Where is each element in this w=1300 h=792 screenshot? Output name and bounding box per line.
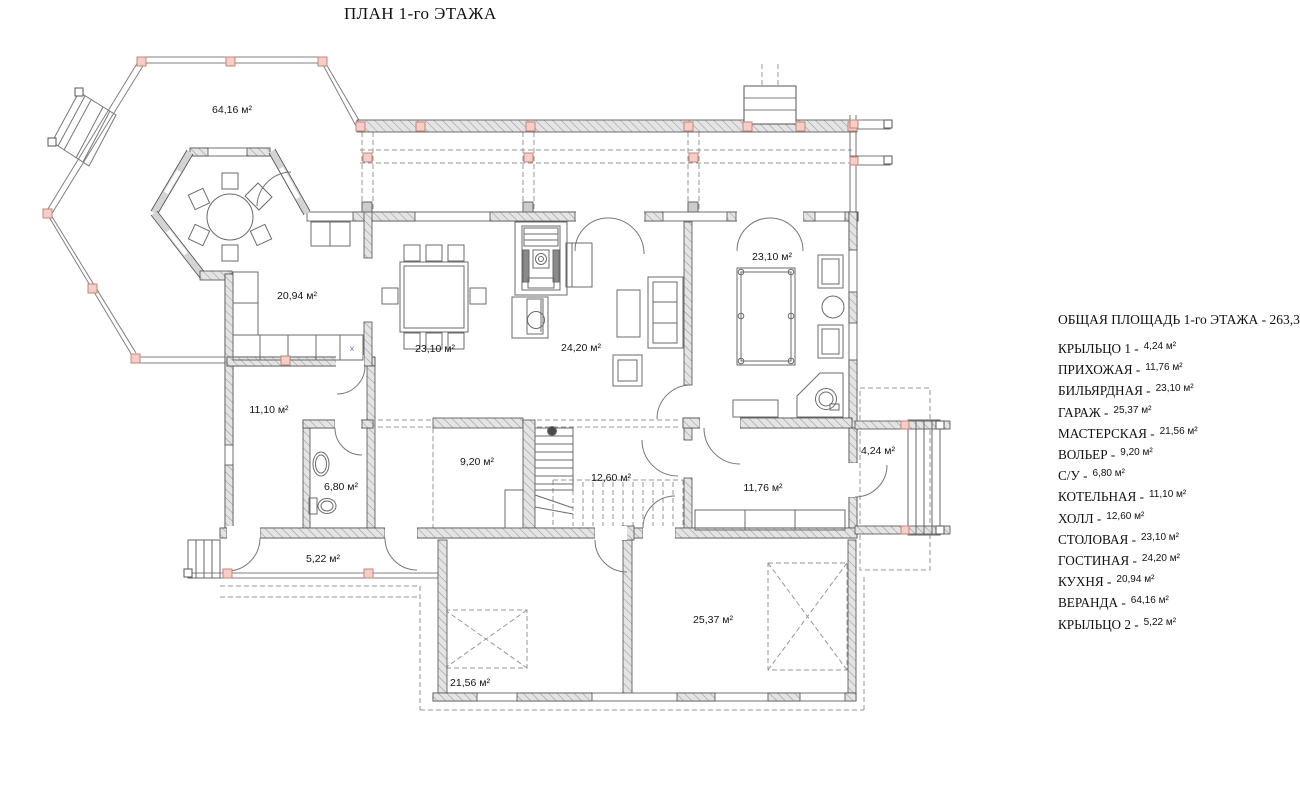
posts (43, 57, 944, 578)
room-label-workshop: 21,56 м² (450, 677, 490, 689)
corridor-porch-door (385, 538, 417, 570)
hall-garage-door (643, 496, 675, 528)
room-label-boiler: 11,10 м² (249, 404, 289, 416)
porch2-steps (188, 540, 220, 578)
garage-right-wall (848, 540, 856, 698)
porch2-apron-dashed (220, 586, 420, 597)
garage-pit-dashed (768, 563, 847, 670)
dining-table (382, 245, 486, 349)
room-label-porch2: 5,22 м² (306, 553, 341, 565)
legend-item-billiard: БИЛЬЯРДНАЯ -23,10 м² (1058, 381, 1300, 402)
coffee-table (617, 290, 640, 337)
room-labels: 64,16 м² 20,94 м² 23,10 м² 24,20 м² 23,1… (212, 104, 895, 689)
legend-title-value: 263,35 м² (1270, 312, 1300, 327)
legend: ОБЩАЯ ПЛОЩАДЬ 1-го ЭТАЖА - 263,35 м² КРЫ… (1058, 312, 1300, 636)
legend-title-label: ОБЩАЯ ПЛОЩАДЬ 1-го ЭТАЖА - (1058, 312, 1266, 327)
workshop-door (595, 540, 627, 572)
legend-item-porch2: КРЫЛЬЦО 2 -5,22 м² (1058, 615, 1300, 636)
room-label-kitchen: 20,94 м² (277, 290, 317, 302)
hallway-closet (695, 510, 845, 530)
billiard-table (737, 268, 795, 365)
room-label-porch1: 4,24 м² (861, 445, 896, 457)
hall-hallway-door (642, 440, 678, 476)
legend-item-porch1: КРЫЛЬЦО 1 -4,24 м² (1058, 339, 1300, 360)
legend-item-living: ГОСТИНАЯ -24,20 м² (1058, 551, 1300, 572)
staircase (535, 427, 573, 515)
veranda-exterior-stair (52, 92, 116, 166)
legend-item-veranda: ВЕРАНДА -64,16 м² (1058, 593, 1300, 614)
balcony-overhang-dashed (360, 150, 852, 163)
legend-item-bathroom: С/У -6,80 м² (1058, 466, 1300, 487)
floor-plan-sheet: ПЛАН 1-го ЭТАЖА (0, 0, 1300, 792)
furniture (188, 173, 845, 530)
legend-title: ОБЩАЯ ПЛОЩАДЬ 1-го ЭТАЖА - 263,35 м² (1058, 312, 1300, 328)
corridor-wall (367, 366, 375, 530)
doors (227, 172, 887, 572)
room-label-living: 24,20 м² (561, 342, 601, 354)
billiard-room-furniture (733, 255, 844, 417)
legend-list: КРЫЛЬЦО 1 -4,24 м² ПРИХОЖАЯ -11,76 м² БИ… (1058, 339, 1300, 636)
stair-wall (523, 420, 535, 536)
legend-item-garage: ГАРАЖ -25,37 м² (1058, 403, 1300, 424)
living-room-furniture (566, 243, 683, 386)
column-axis-dashed (362, 132, 699, 212)
marker-x: x (350, 343, 355, 353)
bathroom-door (335, 428, 362, 455)
room-label-hallway: 11,76 м² (743, 482, 783, 494)
chimney (744, 86, 796, 124)
armchair (566, 243, 592, 287)
living-room-door (657, 385, 691, 419)
gray-posts (362, 202, 698, 212)
kennel-top-wall (433, 418, 523, 428)
living-billiard-wall (684, 222, 692, 385)
pink-posts (43, 57, 909, 578)
bench (733, 400, 778, 417)
kitchen-boiler-door (337, 366, 365, 394)
room-label-garage: 25,37 м² (693, 614, 733, 626)
legend-item-hall: ХОЛЛ -12,60 м² (1058, 509, 1300, 530)
room-label-hall: 12,60 м² (591, 472, 631, 484)
legend-item-dining: СТОЛОВАЯ -23,10 м² (1058, 530, 1300, 551)
dashed-outlines (220, 64, 930, 710)
garage-apron-dashed (420, 575, 864, 710)
porch1-apron-dashed (860, 388, 930, 570)
room-label-veranda: 64,16 м² (212, 104, 252, 116)
boiler-porch-door (227, 538, 260, 571)
overhang-beam (357, 86, 890, 212)
round-side-table (822, 296, 844, 318)
room-label-bathroom: 6,80 м² (324, 481, 359, 493)
nook-slant-walls (151, 149, 310, 278)
porch1-steps (908, 420, 940, 535)
terrace-door-living-right (608, 218, 644, 254)
nook-round-table (188, 173, 272, 261)
room-label-billiard: 23,10 м² (752, 251, 792, 263)
stair-post (548, 427, 557, 436)
legend-item-boiler: КОТЕЛЬНАЯ -11,10 м² (1058, 487, 1300, 508)
workshop-pit-dashed (445, 610, 527, 668)
room-label-dining: 23,10 м² (415, 343, 455, 355)
walls (151, 148, 950, 701)
room-label-kennel: 9,20 м² (460, 456, 495, 468)
chimney-flue-dashed (762, 64, 778, 86)
hallway-living-door (704, 428, 740, 464)
legend-item-kennel: ВОЛЬЕР -9,20 м² (1058, 445, 1300, 466)
garage-middle-wall (623, 540, 632, 698)
legend-item-hallway: ПРИХОЖАЯ -11,76 м² (1058, 360, 1300, 381)
fireplace (512, 222, 567, 338)
garage-left-wall (438, 540, 447, 698)
legend-item-kitchen: КУХНЯ -20,94 м² (1058, 572, 1300, 593)
kennel-box (505, 490, 523, 528)
legend-item-workshop: МАСТЕРСКАЯ -21,56 м² (1058, 424, 1300, 445)
